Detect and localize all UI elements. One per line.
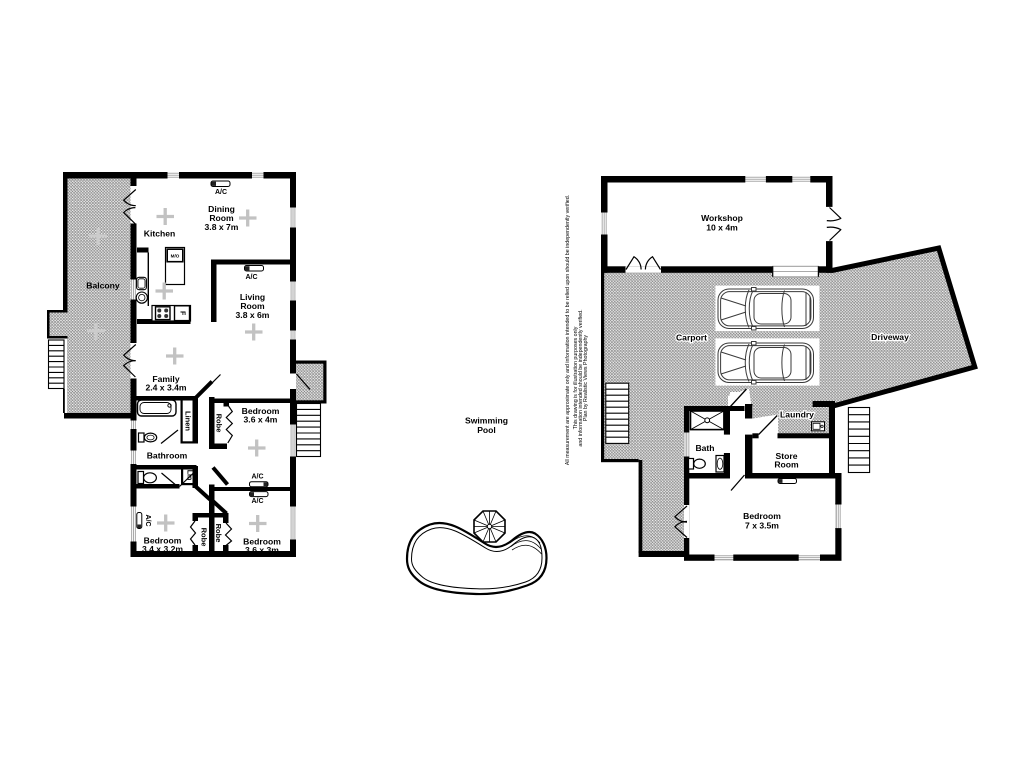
svg-text:Linen: Linen	[183, 411, 192, 431]
svg-text:Laundry: Laundry	[780, 410, 814, 420]
svg-text:Workshop: Workshop	[701, 213, 743, 223]
svg-text:A/C: A/C	[144, 514, 151, 526]
svg-text:3.8 x 6m: 3.8 x 6m	[236, 310, 270, 320]
svg-text:2.4 x 3.4m: 2.4 x 3.4m	[145, 383, 186, 393]
svg-text:Pool: Pool	[477, 425, 496, 435]
svg-text:F: F	[179, 311, 186, 316]
svg-text:Kitchen: Kitchen	[144, 229, 176, 239]
svg-text:3.6 x 3m: 3.6 x 3m	[245, 545, 279, 555]
svg-text:A/C: A/C	[215, 189, 227, 196]
svg-text:3.6 x 4m: 3.6 x 4m	[244, 415, 278, 425]
svg-text:Bath: Bath	[695, 443, 714, 453]
svg-text:Robe: Robe	[215, 414, 224, 433]
svg-text:Bedroom: Bedroom	[743, 511, 781, 521]
svg-text:Robe: Robe	[214, 524, 223, 543]
svg-text:Carport: Carport	[676, 333, 707, 343]
svg-text:Swimming: Swimming	[465, 416, 508, 426]
svg-text:M/O: M/O	[171, 254, 180, 259]
svg-text:3.4 x 3.2m: 3.4 x 3.2m	[142, 544, 183, 554]
svg-text:All measurement are approximat: All measurement are approximate only and…	[565, 195, 571, 465]
svg-text:3.8 x 7m: 3.8 x 7m	[205, 222, 239, 232]
svg-text:A/C: A/C	[251, 498, 263, 505]
svg-text:Room: Room	[774, 460, 799, 470]
svg-text:7 x 3.5m: 7 x 3.5m	[745, 521, 779, 531]
svg-text:Bathroom: Bathroom	[147, 451, 188, 461]
svg-text:Balcony: Balcony	[86, 281, 120, 291]
svg-text:10 x 4m: 10 x 4m	[706, 223, 738, 233]
svg-text:A/C: A/C	[251, 474, 263, 481]
svg-text:Plan by Realistic Views Photog: Plan by Realistic Views Photography	[583, 335, 589, 422]
svg-text:Driveway: Driveway	[871, 332, 909, 342]
svg-text:A/C: A/C	[245, 274, 257, 281]
svg-text:Robe: Robe	[200, 528, 209, 547]
